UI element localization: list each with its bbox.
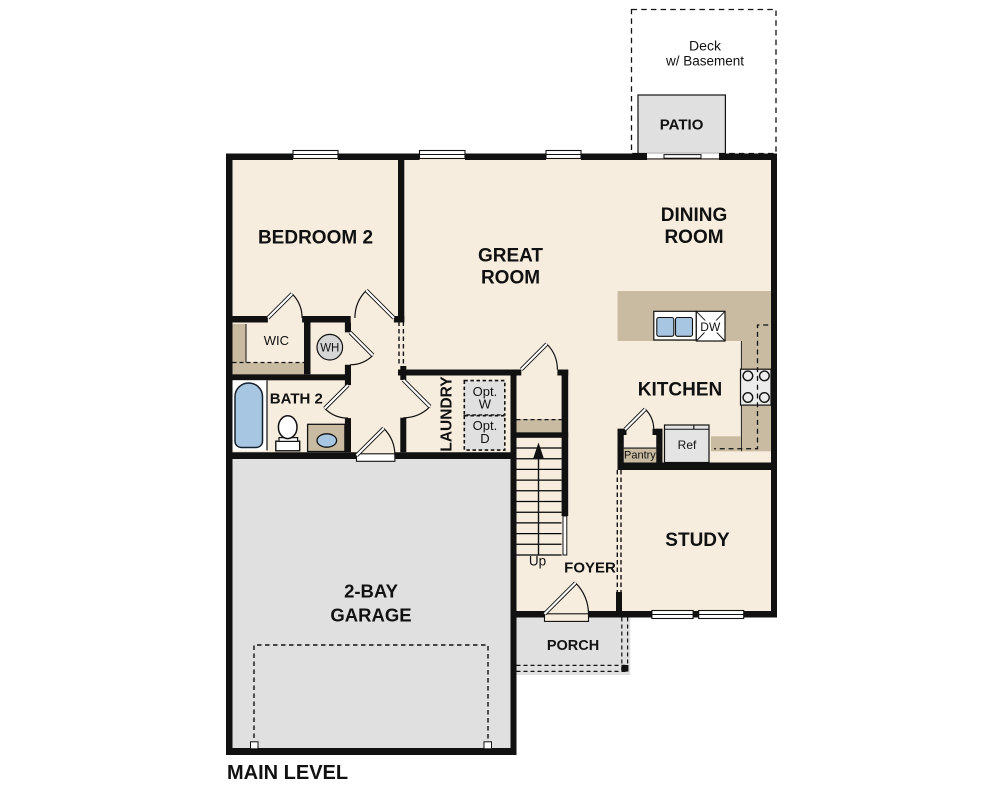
svg-text:GARAGE: GARAGE: [330, 605, 411, 626]
svg-text:BATH 2: BATH 2: [270, 391, 323, 408]
svg-text:PATIO: PATIO: [660, 117, 704, 134]
svg-text:ROOM: ROOM: [664, 227, 723, 248]
svg-text:KITCHEN: KITCHEN: [638, 380, 722, 401]
svg-text:GREAT: GREAT: [478, 245, 543, 266]
svg-text:Up: Up: [529, 554, 546, 569]
svg-text:ROOM: ROOM: [481, 267, 540, 288]
svg-text:Ref: Ref: [678, 438, 697, 452]
svg-text:Deck: Deck: [689, 38, 722, 54]
svg-text:2-BAY: 2-BAY: [344, 581, 398, 602]
svg-text:FOYER: FOYER: [564, 560, 616, 577]
svg-text:Pantry: Pantry: [624, 449, 656, 461]
svg-text:DW: DW: [700, 320, 721, 334]
svg-text:STUDY: STUDY: [665, 530, 730, 551]
svg-text:W: W: [479, 397, 492, 412]
svg-text:PORCH: PORCH: [547, 638, 599, 654]
svg-text:w/ Basement: w/ Basement: [665, 54, 744, 69]
svg-text:D: D: [480, 431, 489, 446]
svg-text:LAUNDRY: LAUNDRY: [439, 376, 456, 452]
svg-text:DINING: DINING: [661, 205, 728, 226]
svg-text:WIC: WIC: [264, 333, 289, 348]
svg-text:MAIN LEVEL: MAIN LEVEL: [227, 762, 348, 784]
svg-text:BEDROOM 2: BEDROOM 2: [258, 228, 373, 249]
svg-text:WH: WH: [320, 343, 339, 355]
